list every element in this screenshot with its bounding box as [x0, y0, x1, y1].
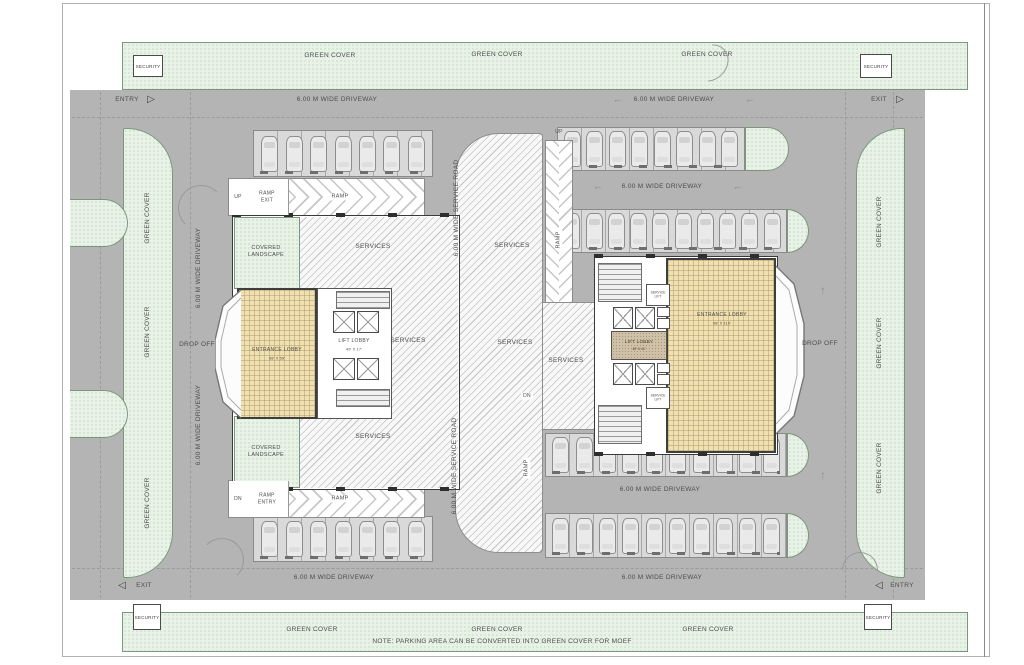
lift-shaft	[635, 307, 655, 329]
turn-arc	[200, 538, 244, 582]
label-driveway: 6.00 M WIDE DRIVEWAY	[620, 486, 700, 494]
services-area-center-ext	[543, 302, 597, 430]
green-parking-end-cap	[745, 127, 789, 171]
shaft-box	[657, 374, 670, 385]
stairs	[598, 405, 642, 444]
column-ticks	[594, 452, 778, 456]
lane-dashed-line	[845, 92, 846, 598]
column-ticks	[594, 254, 778, 258]
label-service-road: 6.00 M WIDE SERVICE ROAD	[453, 160, 461, 257]
car-icon	[310, 521, 327, 557]
label-driveway: 6.00 M WIDE DRIVEWAY	[297, 96, 377, 104]
car-icon	[741, 213, 758, 249]
security-label: SECURITY	[135, 615, 160, 620]
driveway-arrow-left: ←	[733, 182, 744, 193]
label-driveway: 6.00 M WIDE DRIVEWAY	[622, 183, 702, 191]
car-icon	[576, 437, 593, 473]
label-green-cover: GREEN COVER	[876, 196, 884, 247]
label-green-cover: GREEN COVER	[304, 52, 355, 60]
shaft-box	[657, 318, 670, 329]
label-ramp: RAMP	[329, 495, 350, 502]
label-entrance-lobby-right-dim: 98' X 110'	[713, 320, 731, 325]
plan-note: NOTE: PARKING AREA CAN BE CONVERTED INTO…	[372, 638, 631, 646]
label-entry-bottom-right: ENTRY	[890, 582, 913, 590]
lift-shaft	[333, 311, 355, 333]
label-entry-top-left: ENTRY	[115, 96, 138, 104]
label-dn: DN	[234, 496, 242, 503]
label-lift-lobby-left-dim: 49' X 17'	[346, 346, 362, 351]
car-icon	[693, 518, 710, 554]
car-icon	[408, 521, 425, 557]
car-icon	[631, 131, 648, 167]
label-up: UP	[234, 194, 242, 201]
lift-shaft	[333, 358, 355, 380]
car-icon	[721, 131, 738, 167]
label-green-cover: GREEN COVER	[144, 306, 152, 357]
label-ramp: RAMP	[523, 457, 530, 478]
driveway-arrow-up: ↑	[820, 284, 826, 296]
driveway-arrow-left: ←	[593, 182, 604, 193]
label-exit-top-right: EXIT	[871, 96, 887, 104]
car-icon	[608, 213, 625, 249]
car-icon	[716, 518, 733, 554]
label-green-cover: GREEN COVER	[144, 192, 152, 243]
drop-off-canopy-left	[215, 286, 241, 422]
car-icon	[286, 136, 303, 172]
lift-shaft	[635, 363, 655, 385]
label-up: UP	[555, 129, 563, 136]
label-services: SERVICES	[494, 242, 529, 250]
car-icon	[669, 518, 686, 554]
car-icon	[552, 437, 569, 473]
label-covered-landscape: COVERED LANDSCAPE	[241, 245, 291, 259]
car-icon	[675, 213, 692, 249]
label-lift-lobby-right: LIFT LOBBY	[625, 339, 653, 345]
label-entrance-lobby-left-dim: 98' X 59'	[269, 355, 285, 360]
label-driveway: 6.00 M WIDE DRIVEWAY	[195, 385, 203, 465]
car-icon	[359, 136, 376, 172]
label-drop-off-right: DROP OFF	[802, 340, 838, 348]
label-green-cover: GREEN COVER	[682, 626, 733, 634]
car-icon	[310, 136, 327, 172]
lift-lobby-right	[611, 331, 667, 360]
car-icon	[383, 521, 400, 557]
label-green-cover: GREEN COVER	[876, 317, 884, 368]
shaft-box	[657, 363, 670, 373]
label-entrance-lobby-left: ENTRANCE LOBBY	[252, 347, 302, 354]
entry-arrow-bottom-right: ◁	[875, 581, 883, 591]
car-icon	[576, 518, 593, 554]
label-services: SERVICES	[548, 357, 583, 365]
label-covered-landscape: COVERED LANDSCAPE	[241, 445, 291, 459]
label-services: SERVICES	[355, 433, 390, 441]
car-icon	[622, 518, 639, 554]
stairs	[336, 389, 390, 407]
lift-shaft	[613, 363, 633, 385]
car-icon	[599, 518, 616, 554]
label-green-cover: GREEN COVER	[144, 477, 152, 528]
green-island	[70, 199, 128, 247]
car-icon	[646, 518, 663, 554]
security-box-bottom-left: SECURITY	[133, 604, 161, 630]
label-service-road: 6.00 M WIDE SERVICE ROAD	[451, 418, 459, 515]
shaft-box	[657, 307, 670, 317]
lift-shaft	[357, 358, 379, 380]
label-driveway: 6.00 M WIDE DRIVEWAY	[634, 96, 714, 104]
car-icon	[652, 213, 669, 249]
car-icon	[261, 521, 278, 557]
car-icon	[586, 213, 603, 249]
car-icon	[552, 518, 569, 554]
car-icon	[630, 213, 647, 249]
entrance-lobby-right	[666, 258, 776, 453]
lane-dashed-line	[72, 117, 923, 118]
label-dn: DN	[521, 393, 533, 400]
green-island	[70, 390, 128, 438]
label-lift-lobby-right-dim: 49' X 41'	[633, 347, 646, 351]
label-drop-off-left: DROP OFF	[179, 341, 215, 349]
lane-dashed-line	[893, 92, 894, 128]
label-services: SERVICES	[497, 339, 532, 347]
sheet-border-right-line	[984, 3, 985, 657]
entrance-lobby-left	[237, 288, 317, 419]
car-icon	[335, 521, 352, 557]
security-box-bottom-right: SECURITY	[864, 604, 892, 630]
car-icon	[383, 136, 400, 172]
car-icon	[697, 213, 714, 249]
car-icon	[699, 131, 716, 167]
label-service-lift: SERVICE LIFT	[648, 291, 668, 300]
label-ramp-entry: RAMP ENTRY	[252, 493, 282, 506]
car-icon	[335, 136, 352, 172]
drop-off-canopy-right	[776, 262, 806, 438]
car-icon	[763, 518, 780, 554]
label-lift-lobby-left: LIFT LOBBY	[338, 338, 369, 345]
exit-arrow-bottom-left: ◁	[118, 581, 126, 591]
driveway-arrow-left: ←	[613, 95, 624, 106]
label-ramp: RAMP	[329, 193, 350, 200]
security-label: SECURITY	[864, 64, 889, 69]
driveway-arrow-up: ↑	[820, 469, 826, 481]
lane-dashed-line	[72, 568, 923, 569]
car-icon	[261, 136, 278, 172]
lane-dashed-line	[100, 92, 101, 598]
label-driveway: 6.00 M WIDE DRIVEWAY	[622, 574, 702, 582]
green-cover-strip-top	[122, 42, 968, 90]
car-icon	[586, 131, 603, 167]
label-ramp-exit: RAMP EXIT	[253, 191, 281, 204]
label-driveway: 6.00 M WIDE DRIVEWAY	[294, 574, 374, 582]
parking-row	[557, 127, 745, 171]
label-services: SERVICES	[390, 337, 425, 345]
label-green-cover: GREEN COVER	[471, 51, 522, 59]
turn-arc	[178, 185, 224, 231]
car-icon	[676, 131, 693, 167]
stairs	[336, 291, 390, 309]
security-label: SECURITY	[136, 64, 161, 69]
label-service-lift: SERVICE LIFT	[648, 394, 668, 403]
stairs	[598, 263, 642, 302]
parking-row	[557, 209, 787, 253]
car-icon	[764, 213, 781, 249]
label-entrance-lobby-right: ENTRANCE LOBBY	[697, 312, 747, 319]
label-green-cover: GREEN COVER	[286, 626, 337, 634]
label-driveway: 6.00 M WIDE DRIVEWAY	[195, 228, 203, 308]
car-icon	[359, 521, 376, 557]
exit-arrow-top-right: ▷	[896, 95, 904, 105]
entry-arrow-top-left: ▷	[147, 95, 155, 105]
parking-row	[253, 130, 433, 177]
car-icon	[739, 518, 756, 554]
car-icon	[719, 213, 736, 249]
parking-row	[545, 513, 787, 558]
label-ramp: RAMP	[555, 229, 562, 250]
label-services: SERVICES	[355, 243, 390, 251]
site-plan-drawing: SECURITY SECURITY SECURITY SECURITY GREE…	[0, 0, 1024, 665]
parking-row	[253, 516, 433, 562]
label-green-cover: GREEN COVER	[471, 626, 522, 634]
car-icon	[408, 136, 425, 172]
label-exit-bottom-left: EXIT	[136, 582, 152, 590]
car-icon	[654, 131, 671, 167]
security-box-top-right: SECURITY	[860, 54, 892, 78]
ramp-up-center	[545, 140, 573, 308]
car-icon	[609, 131, 626, 167]
car-icon	[286, 521, 303, 557]
security-box-top-left: SECURITY	[133, 55, 163, 77]
driveway-arrow-left: ←	[745, 95, 756, 106]
lift-shaft	[357, 311, 379, 333]
label-green-cover: GREEN COVER	[876, 442, 884, 493]
security-label: SECURITY	[866, 615, 891, 620]
lift-shaft	[613, 307, 633, 329]
